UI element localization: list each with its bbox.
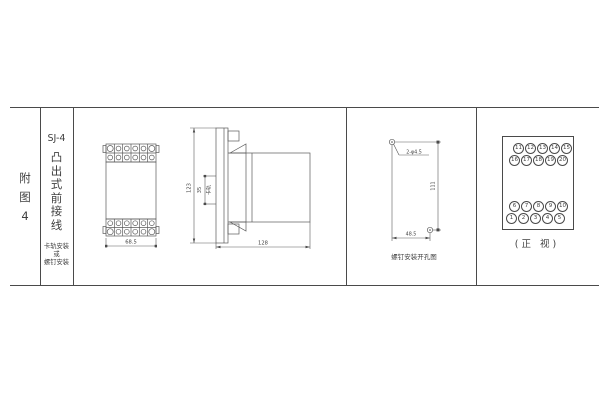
terminal-number: 1 xyxy=(506,213,517,224)
side-view-drawing: 123 35 卡轨 128 xyxy=(182,122,314,254)
drill-width-dimension xyxy=(392,145,430,241)
front-view-body xyxy=(103,144,159,236)
divider-4 xyxy=(476,107,477,285)
mounting-note: 卡轨安装 或 螺钉安装 xyxy=(40,243,73,267)
drill-height-dim-label: 111 xyxy=(431,181,437,190)
terminal-number: 7 xyxy=(521,201,532,212)
front-width-dim-label: 68.5 xyxy=(125,240,137,246)
terminal-row-1: 11 12 13 14 15 xyxy=(513,143,573,154)
figure-index-char: 图 xyxy=(10,191,40,203)
terminal-row-3: 6 7 8 9 10 xyxy=(509,201,569,212)
terminal-number: 16 xyxy=(509,155,520,166)
rail-dim-label: 35 xyxy=(197,187,203,193)
mounting-note-line: 螺钉安装 xyxy=(40,259,73,267)
drill-holes-label: 2-φ4.5 xyxy=(406,150,422,156)
terminal-number: 6 xyxy=(509,201,520,212)
figure-index-char: 附 xyxy=(10,172,40,184)
front-view-drawing: 68.5 xyxy=(98,132,170,254)
terminal-number: 11 xyxy=(513,143,524,154)
terminal-number: 19 xyxy=(545,155,556,166)
figure-index-char: 4 xyxy=(10,210,40,222)
terminal-number: 8 xyxy=(533,201,544,212)
mounting-note-line: 卡轨安装 xyxy=(40,243,73,251)
divider-3 xyxy=(346,107,347,285)
terminal-number: 18 xyxy=(533,155,544,166)
drill-view-caption: 螺钉安装开孔图 xyxy=(362,251,466,261)
drill-view-drawing: 111 2-φ4.5 48.5 xyxy=(362,128,466,258)
drawing-sheet: 附 图 4 SJ-4 凸出式前接线 卡轨安装 或 螺钉安装 xyxy=(0,0,600,400)
mounting-note-line: 或 xyxy=(40,251,73,259)
drill-width-dim-label: 48.5 xyxy=(406,232,417,238)
terminal-view: 11 12 13 14 15 16 17 18 19 20 6 7 8 9 10… xyxy=(502,136,574,230)
side-depth-dim-label: 128 xyxy=(258,241,268,247)
terminal-number: 20 xyxy=(557,155,568,166)
terminal-number: 15 xyxy=(561,143,572,154)
band-bottom-border xyxy=(10,285,599,286)
terminal-view-caption: (正 视) xyxy=(495,236,579,250)
terminal-row-2: 16 17 18 19 20 xyxy=(509,155,569,166)
terminal-number: 10 xyxy=(557,201,568,212)
divider-2 xyxy=(73,107,74,285)
terminal-number: 3 xyxy=(530,213,541,224)
side-height-dim-label: 123 xyxy=(187,183,193,193)
band-top-border xyxy=(10,107,599,108)
terminal-number: 12 xyxy=(525,143,536,154)
terminal-number: 17 xyxy=(521,155,532,166)
rail-dim-text: 卡轨 xyxy=(206,185,213,195)
terminal-number: 13 xyxy=(537,143,548,154)
model-label: SJ-4 xyxy=(40,133,73,144)
figure-index: 附 图 4 xyxy=(10,172,40,229)
terminal-number: 2 xyxy=(518,213,529,224)
terminal-number: 9 xyxy=(545,201,556,212)
style-vertical-label: 凸出式前接线 xyxy=(50,151,64,232)
terminal-number: 14 xyxy=(549,143,560,154)
terminal-number: 4 xyxy=(542,213,553,224)
terminal-number: 5 xyxy=(554,213,565,224)
side-view-body xyxy=(216,128,310,243)
terminal-row-4: 1 2 3 4 5 xyxy=(506,213,566,224)
